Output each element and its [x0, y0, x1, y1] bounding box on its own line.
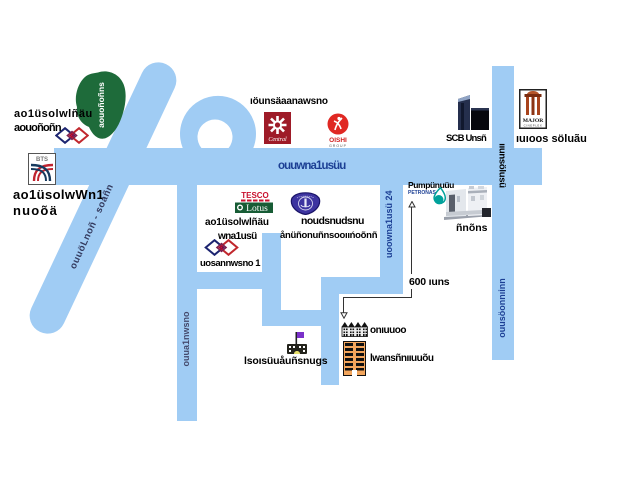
svg-text:OISHI: OISHI	[329, 137, 347, 144]
svg-text:GROUP: GROUP	[329, 144, 347, 148]
svg-text:TESCO: TESCO	[241, 191, 269, 200]
svg-text:CINEPLEX: CINEPLEX	[524, 124, 543, 128]
svg-text:BTS: BTS	[36, 157, 48, 163]
svg-text:Central: Central	[268, 137, 287, 143]
svg-text:Lotus: Lotus	[246, 204, 268, 213]
